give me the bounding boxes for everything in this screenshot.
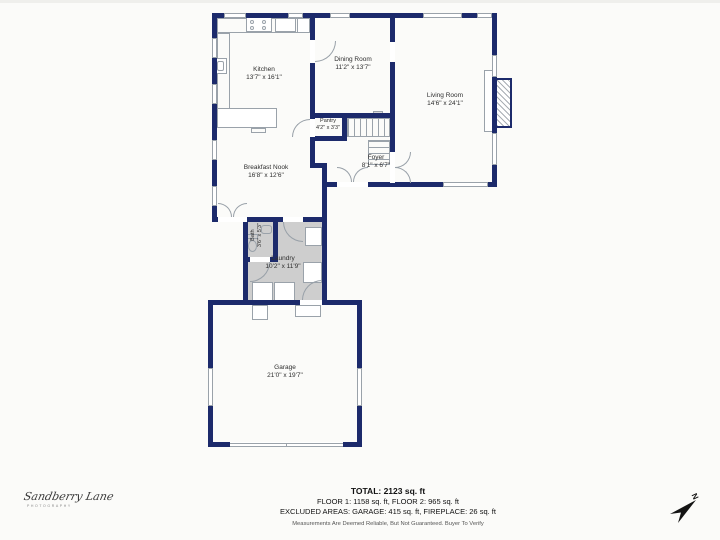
window	[492, 55, 497, 77]
doorway-garage-entry	[300, 300, 322, 305]
room-dims: 8'1" x 6'7"	[336, 162, 416, 170]
room-name: Breakfast Nook	[216, 164, 316, 172]
door-arc-nook-left	[218, 203, 232, 217]
room-name: Foyer	[336, 154, 416, 162]
room-name: Pantry	[304, 118, 352, 125]
window	[477, 13, 492, 18]
area-summary: TOTAL: 2123 sq. ft FLOOR 1: 1158 sq. ft,…	[188, 486, 588, 527]
dryer	[274, 282, 295, 302]
wall-foyer-living-stub	[390, 183, 395, 187]
window	[212, 186, 217, 206]
logo-sub-text: PHOTOGRAPHY	[27, 504, 113, 508]
room-dims: 11'2" x 13'7"	[303, 64, 403, 72]
room-label-garage: Garage 21'0" x 19'7"	[235, 364, 335, 381]
room-dims: 10'2" x 11'9"	[243, 263, 323, 271]
stove-burner	[250, 20, 254, 24]
stove	[246, 17, 272, 32]
room-name: Kitchen	[214, 66, 314, 74]
fireplace	[495, 78, 512, 128]
excluded-areas: EXCLUDED AREAS: GARAGE: 415 sq. ft, FIRE…	[188, 507, 588, 516]
window	[423, 13, 462, 18]
room-label-living: Living Room 14'6" x 24'1"	[395, 92, 495, 109]
wall-kitchen-dining-upper	[310, 13, 315, 40]
disclaimer: Measurements Are Deemed Reliable, But No…	[188, 521, 588, 527]
wall-dining-living-upper	[390, 13, 395, 42]
window	[357, 368, 362, 406]
doorway-entry	[337, 182, 368, 187]
window	[330, 13, 350, 18]
wall-pantry-bottom	[310, 136, 347, 141]
kitchen-appliance	[275, 18, 296, 32]
garage-door-tick	[286, 443, 287, 447]
room-dims: 13'7" x 16'1"	[214, 74, 314, 82]
stairs-upper-flight	[347, 118, 390, 137]
room-dims: 16'8" x 12'6"	[216, 172, 316, 180]
laundry-cabinet	[305, 227, 322, 246]
stove-burner	[262, 26, 266, 30]
room-dims: 4'2" x 3'3"	[304, 125, 352, 132]
room-name: Bath	[250, 215, 257, 255]
doorway-nook-exterior	[218, 217, 247, 222]
dishwasher	[251, 128, 266, 133]
washer	[252, 282, 273, 302]
logo-script-text: Sandberry Lane	[23, 490, 115, 503]
total-area: TOTAL: 2123 sq. ft	[188, 486, 588, 496]
room-name: Laundry	[243, 255, 323, 263]
room-name: Garage	[235, 364, 335, 372]
stove-burner	[250, 26, 254, 30]
room-label-dining: Dining Room 11'2" x 13'7"	[303, 56, 403, 73]
floor-areas: FLOOR 1: 1158 sq. ft, FLOOR 2: 965 sq. f…	[188, 497, 588, 506]
window	[208, 368, 213, 406]
window	[492, 133, 497, 165]
north-arrow-icon: N	[666, 492, 706, 526]
room-label-pantry: Pantry 4'2" x 3'3"	[304, 118, 352, 132]
floor-plan: Kitchen 13'7" x 16'1" Dining Room 11'2" …	[0, 0, 720, 540]
refrigerator	[297, 18, 310, 33]
room-label-kitchen: Kitchen 13'7" x 16'1"	[214, 66, 314, 83]
window	[224, 13, 246, 18]
garage-step	[252, 305, 268, 320]
window	[212, 140, 217, 160]
room-label-laundry: Laundry 10'2" x 11'9"	[243, 255, 323, 272]
window	[443, 182, 488, 187]
door-arc-nook-right	[233, 203, 247, 217]
garage-step	[295, 305, 321, 317]
room-label-breakfast-nook: Breakfast Nook 16'8" x 12'6"	[216, 164, 316, 181]
window	[212, 38, 217, 58]
window	[212, 84, 217, 104]
window	[288, 13, 303, 18]
room-name: Living Room	[395, 92, 495, 100]
room-dims: 21'0" x 19'7"	[235, 372, 335, 380]
room-dims: 14'6" x 24'1"	[395, 100, 495, 108]
stove-burner	[262, 20, 266, 24]
room-label-foyer: Foyer 8'1" x 6'7"	[336, 154, 416, 171]
kitchen-peninsula	[217, 108, 277, 128]
room-name: Dining Room	[303, 56, 403, 64]
wall-laundry-right	[322, 163, 327, 305]
room-dims: 3'6" x 5'3"	[257, 215, 264, 255]
photographer-logo: Sandberry Lane PHOTOGRAPHY	[24, 487, 113, 508]
wall-garage-top	[208, 300, 362, 305]
room-label-bath: Bath 3'6" x 5'3"	[250, 215, 264, 255]
